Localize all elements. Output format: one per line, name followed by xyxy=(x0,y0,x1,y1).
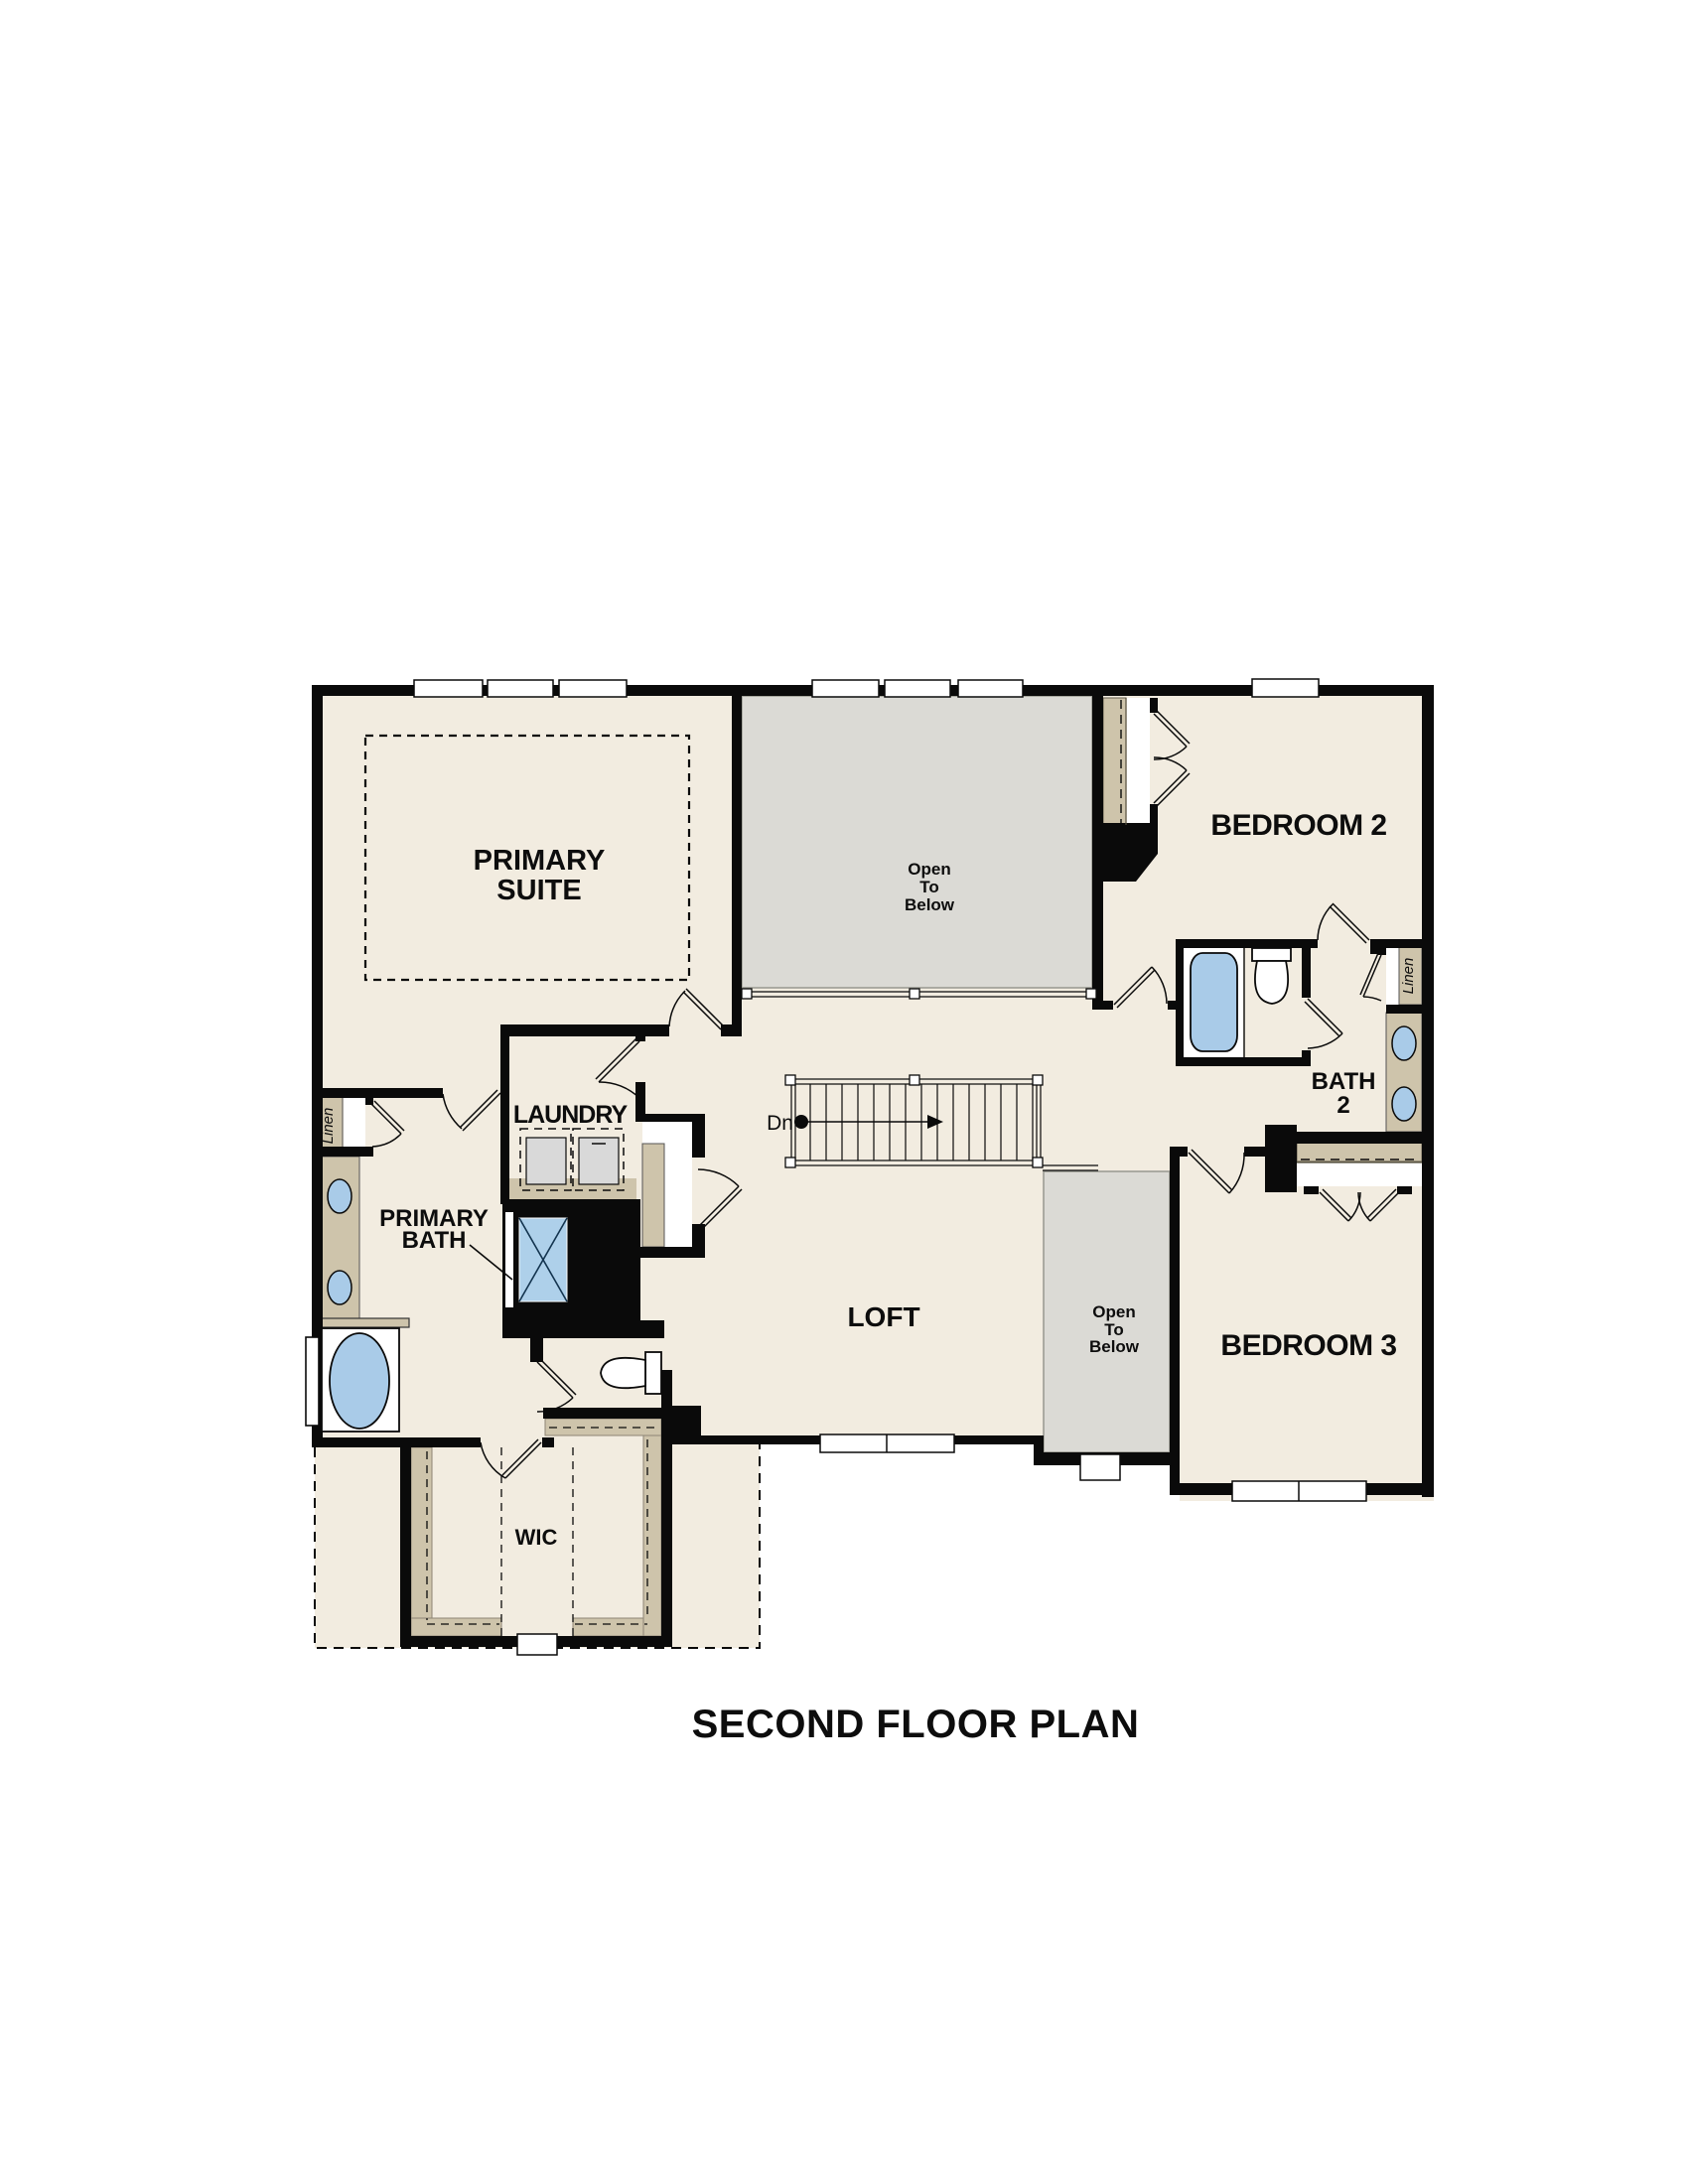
svg-text:Open: Open xyxy=(1092,1302,1135,1321)
svg-text:BATH: BATH xyxy=(1312,1068,1376,1095)
svg-text:SUITE: SUITE xyxy=(496,875,581,906)
svg-text:2: 2 xyxy=(1336,1092,1349,1119)
svg-text:PRIMARY: PRIMARY xyxy=(474,845,606,877)
svg-text:Linen: Linen xyxy=(320,1108,337,1145)
svg-text:Below: Below xyxy=(905,895,955,914)
svg-text:BEDROOM 2: BEDROOM 2 xyxy=(1210,809,1386,842)
svg-text:BEDROOM 3: BEDROOM 3 xyxy=(1220,1329,1396,1362)
svg-text:WIC: WIC xyxy=(515,1525,558,1550)
svg-text:BATH: BATH xyxy=(402,1227,467,1254)
svg-text:LOFT: LOFT xyxy=(847,1301,919,1332)
svg-text:Open: Open xyxy=(908,860,950,879)
svg-text:Below: Below xyxy=(1089,1337,1140,1356)
svg-text:Dn: Dn xyxy=(767,1112,793,1135)
svg-text:To: To xyxy=(919,878,939,896)
svg-text:LAUNDRY: LAUNDRY xyxy=(513,1101,629,1129)
svg-text:Linen: Linen xyxy=(1400,958,1417,995)
svg-text:SECOND FLOOR PLAN: SECOND FLOOR PLAN xyxy=(692,1703,1140,1746)
